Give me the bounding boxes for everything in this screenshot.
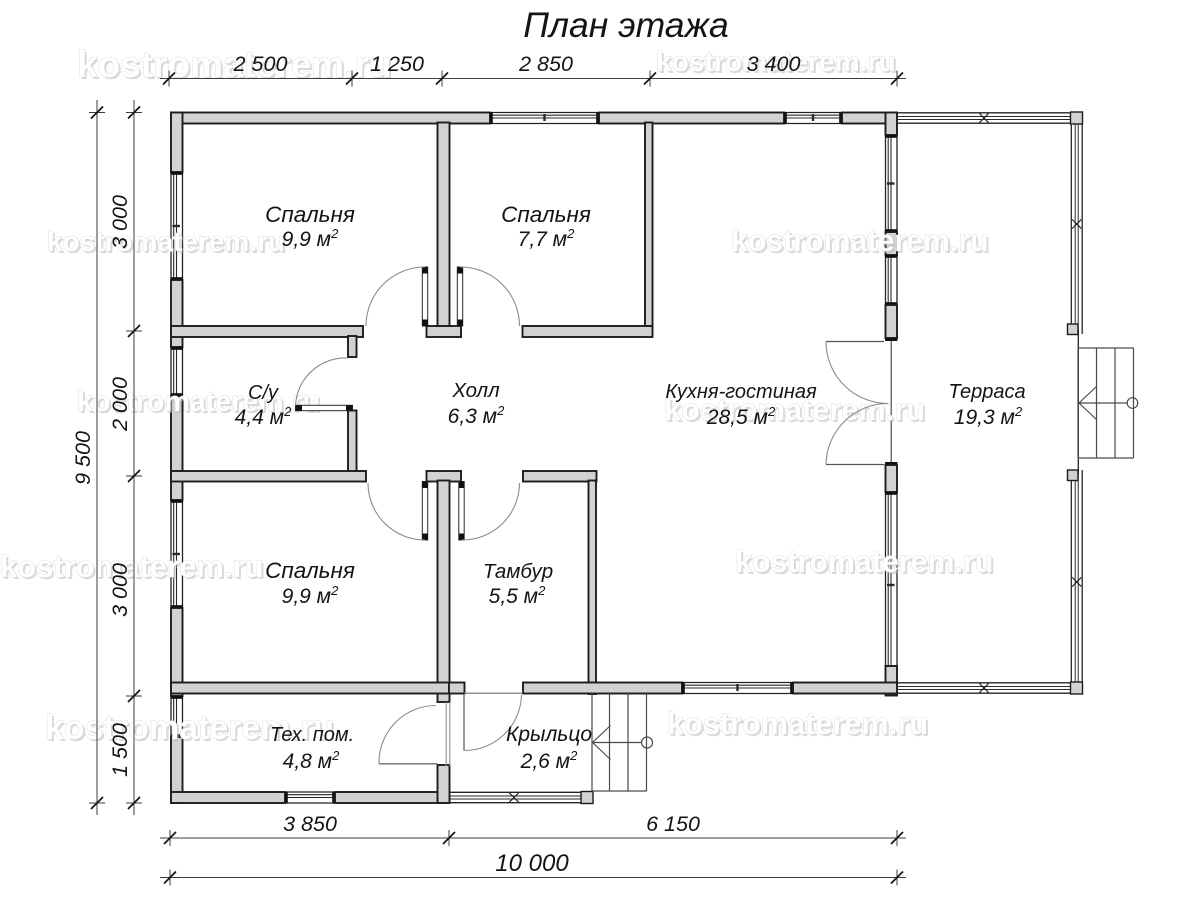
- svg-text:kostromaterem.ru: kostromaterem.ru: [735, 545, 993, 579]
- svg-text:kostromaterem.ru: kostromaterem.ru: [47, 226, 285, 257]
- svg-text:1 500: 1 500: [108, 723, 132, 777]
- svg-text:6 150: 6 150: [646, 812, 700, 836]
- svg-text:3 400: 3 400: [747, 52, 801, 76]
- svg-text:2 000: 2 000: [108, 377, 132, 432]
- svg-text:9,9 м2: 9,9 м2: [282, 226, 339, 251]
- svg-text:10 000: 10 000: [495, 850, 569, 877]
- svg-text:3 000: 3 000: [108, 563, 132, 617]
- svg-text:Спальня: Спальня: [265, 202, 355, 227]
- svg-text:Холл: Холл: [451, 379, 500, 402]
- svg-text:28,5 м2: 28,5 м2: [706, 404, 776, 429]
- svg-text:1 250: 1 250: [370, 52, 424, 76]
- svg-text:План этажа: План этажа: [523, 5, 728, 45]
- svg-text:kostromaterem.ru: kostromaterem.ru: [667, 706, 928, 741]
- svg-text:3 000: 3 000: [108, 195, 132, 249]
- svg-text:2,6 м2: 2,6 м2: [520, 748, 578, 773]
- svg-text:4,4 м2: 4,4 м2: [235, 404, 292, 429]
- svg-text:Крыльцо: Крыльцо: [506, 723, 592, 746]
- svg-text:Тамбур: Тамбур: [483, 560, 553, 583]
- svg-text:19,3 м2: 19,3 м2: [954, 404, 1023, 429]
- svg-text:Спальня: Спальня: [265, 558, 355, 583]
- svg-text:9,9 м2: 9,9 м2: [282, 583, 339, 608]
- svg-text:3 850: 3 850: [283, 812, 337, 836]
- svg-text:4,8 м2: 4,8 м2: [283, 748, 340, 773]
- svg-text:7,7 м2: 7,7 м2: [518, 226, 575, 251]
- svg-text:9 500: 9 500: [71, 431, 95, 485]
- svg-text:2 500: 2 500: [233, 52, 288, 76]
- svg-text:Терраса: Терраса: [948, 381, 1025, 403]
- svg-text:kostromaterem.ru: kostromaterem.ru: [731, 225, 989, 258]
- svg-text:Тех. пом.: Тех. пом.: [270, 724, 354, 746]
- svg-text:2 850: 2 850: [518, 52, 573, 76]
- svg-text:Спальня: Спальня: [501, 202, 591, 227]
- svg-text:С/у: С/у: [248, 382, 279, 404]
- svg-text:6,3 м2: 6,3 м2: [448, 403, 505, 428]
- svg-text:Кухня-гостиная: Кухня-гостиная: [665, 381, 817, 403]
- svg-text:5,5 м2: 5,5 м2: [489, 583, 546, 608]
